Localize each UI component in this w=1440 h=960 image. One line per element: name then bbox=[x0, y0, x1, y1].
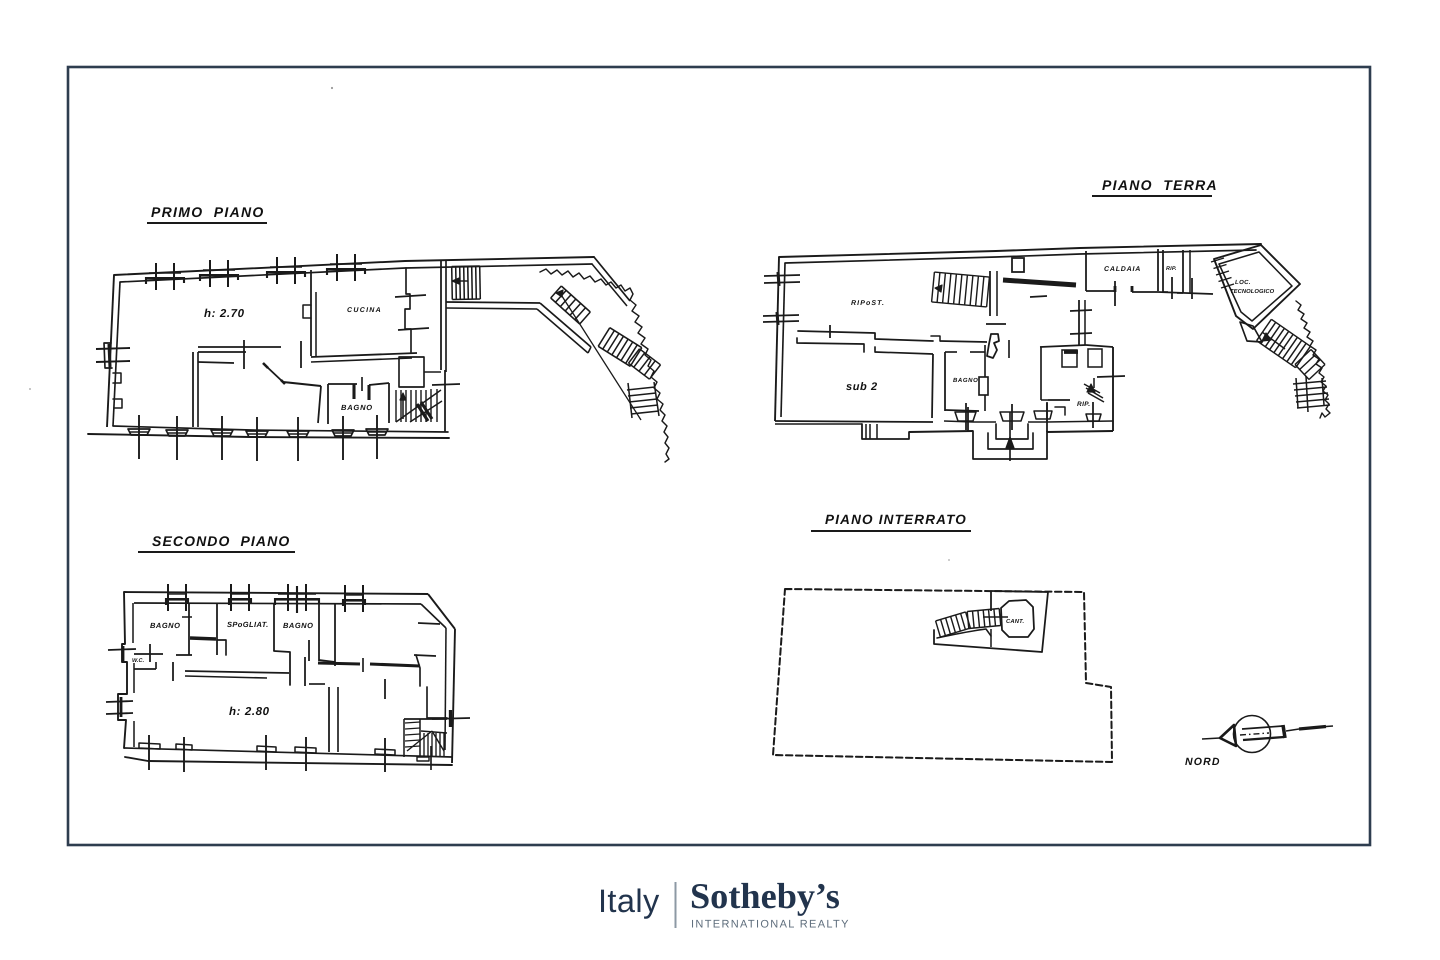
svg-text:RIPoST.: RIPoST. bbox=[851, 300, 885, 307]
svg-text:SECONDO PIANO: SECONDO PIANO bbox=[152, 533, 290, 549]
svg-text:Sotheby’s: Sotheby’s bbox=[690, 876, 840, 916]
svg-text:BAGNO: BAGNO bbox=[283, 621, 313, 630]
svg-text:PIANO TERRA: PIANO TERRA bbox=[1102, 177, 1218, 193]
svg-text:sub 2: sub 2 bbox=[846, 381, 878, 393]
svg-text:RIP.: RIP. bbox=[1166, 266, 1177, 272]
svg-text:CALDAIA: CALDAIA bbox=[1104, 266, 1141, 273]
svg-text:Italy: Italy bbox=[598, 883, 660, 919]
svg-text:h: 2.80: h: 2.80 bbox=[229, 706, 270, 718]
svg-text:PRIMO PIANO: PRIMO PIANO bbox=[151, 204, 265, 220]
svg-text:CANT.: CANT. bbox=[1006, 618, 1024, 625]
svg-text:NORD: NORD bbox=[1185, 756, 1221, 768]
svg-text:PIANO INTERRATO: PIANO INTERRATO bbox=[825, 512, 967, 527]
svg-text:SPoGLIAT.: SPoGLIAT. bbox=[227, 620, 269, 629]
svg-text:BAGNO: BAGNO bbox=[341, 403, 373, 412]
svg-text:CUCINA: CUCINA bbox=[347, 307, 382, 314]
svg-text:RIP.: RIP. bbox=[1077, 401, 1090, 408]
svg-text:INTERNATIONAL REALTY: INTERNATIONAL REALTY bbox=[691, 919, 850, 931]
svg-text:BAGNO: BAGNO bbox=[150, 621, 180, 630]
svg-text:LOC.: LOC. bbox=[1235, 279, 1251, 286]
svg-text:TECNOLOGICO: TECNOLOGICO bbox=[1230, 288, 1275, 295]
svg-text:h: 2.70: h: 2.70 bbox=[204, 308, 245, 320]
svg-text:W.C.: W.C. bbox=[132, 658, 145, 664]
svg-text:BAGNO: BAGNO bbox=[953, 377, 978, 384]
